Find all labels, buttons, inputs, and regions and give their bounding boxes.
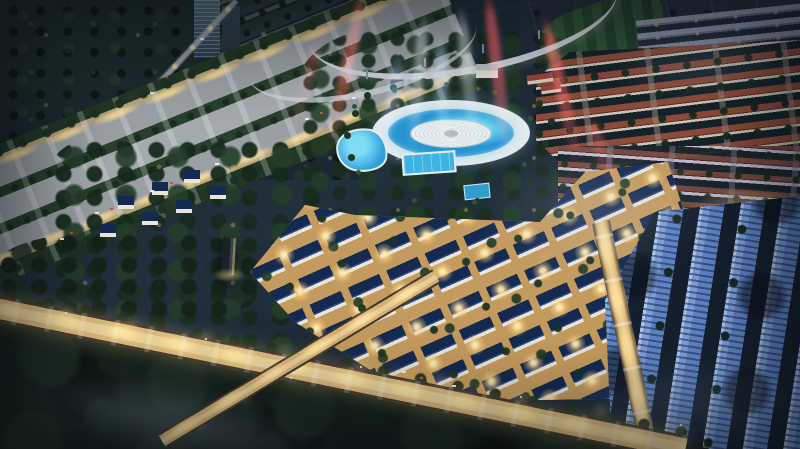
monument-uplight: [212, 268, 246, 282]
aerial-render: [0, 0, 800, 449]
low-haze: [556, 356, 800, 449]
swimming-pool: [401, 150, 456, 176]
streetlamp-cores: [0, 0, 2, 2]
palm-trees: [364, 92, 371, 99]
high-haze: [600, 28, 800, 100]
park-villa-roofs: [118, 196, 134, 205]
palm-trees-light: [352, 104, 357, 109]
park-villa-walls: [118, 205, 134, 209]
drifting-smoke: [478, 148, 712, 274]
